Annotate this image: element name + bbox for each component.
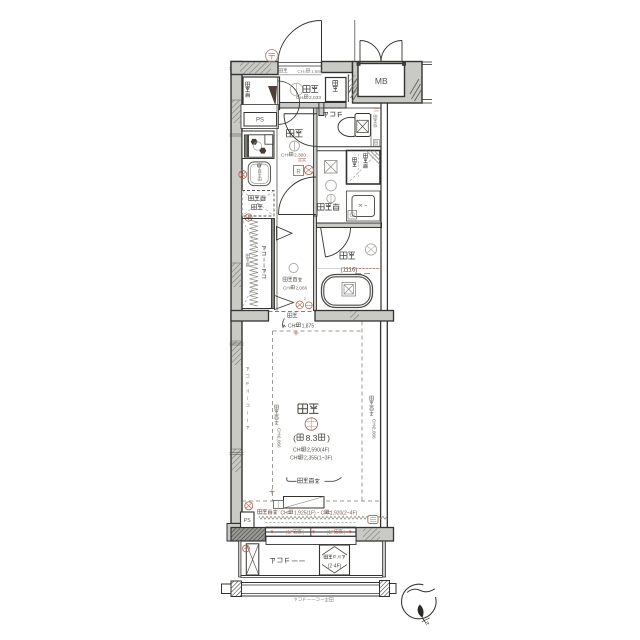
svg-text:MB: MB — [375, 76, 388, 86]
svg-text:(1F: (1F — [327, 530, 335, 536]
svg-text:R: R — [296, 170, 301, 176]
svg-text:(1116): (1116) — [341, 267, 358, 274]
svg-text:2,066: 2,066 — [277, 436, 282, 448]
svg-text:1,920(2~4F): 1,920(2~4F) — [330, 511, 358, 517]
svg-text:): ) — [327, 433, 330, 443]
svg-text:(1F: (1F — [286, 530, 294, 536]
svg-text:PS: PS — [244, 518, 251, 524]
svg-text:2,066: 2,066 — [296, 286, 308, 291]
svg-text:(: ( — [293, 433, 296, 443]
svg-text:2,355(1~3F): 2,355(1~3F) — [304, 456, 333, 462]
svg-text:2,066: 2,066 — [372, 427, 377, 439]
svg-text:1,925(1F)・CH=: 1,925(1F)・CH= — [294, 511, 331, 517]
svg-text:8.3: 8.3 — [306, 433, 318, 443]
svg-text:(2·4F): (2·4F) — [328, 564, 342, 570]
svg-text:1,875: 1,875 — [302, 324, 315, 330]
svg-text:CH=: CH= — [297, 69, 307, 74]
svg-text:PS: PS — [256, 118, 264, 124]
svg-text:2,033: 2,033 — [309, 95, 321, 101]
svg-text:1,880: 1,880 — [311, 69, 323, 74]
svg-text:2,300: 2,300 — [294, 153, 306, 159]
svg-text:2,590(4F): 2,590(4F) — [307, 448, 330, 454]
